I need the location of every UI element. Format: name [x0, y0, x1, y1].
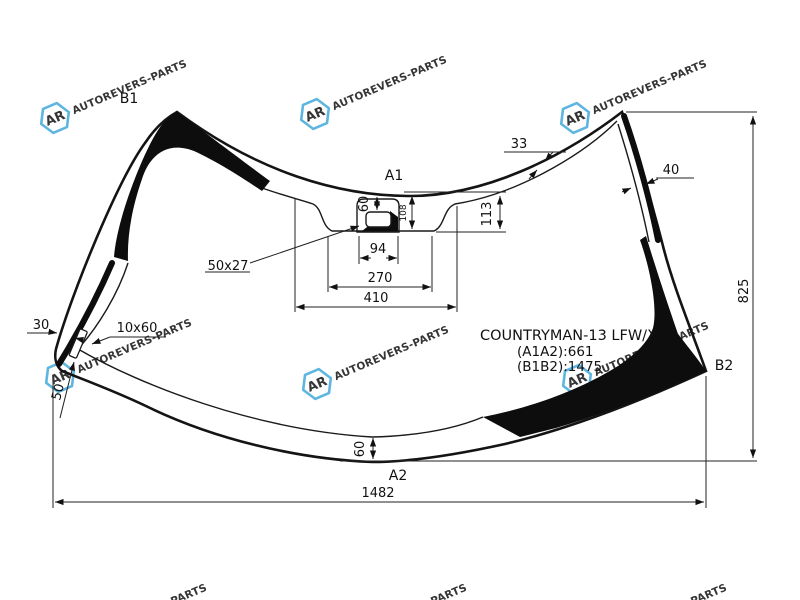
inner-trim-top — [262, 121, 617, 231]
drawing-canvas: AR AUTOREVERS-PARTS AR AUTOREVERS-PARTS … — [0, 0, 800, 600]
watermark: AR AUTOREVERS-PARTS — [296, 46, 451, 131]
frit-band-top-left — [114, 112, 270, 261]
dim-pocket-depth: 113 — [480, 202, 495, 227]
dim-side-band: 40 — [663, 163, 680, 178]
windshield-technical-drawing: AR AUTOREVERS-PARTS AR AUTOREVERS-PARTS … — [0, 0, 800, 600]
watermark: AR AUTOREVERS-PARTS — [298, 316, 453, 401]
dim-sensor-size: 50x27 — [208, 259, 249, 274]
watermark: AR AUTOREVERS-PARTS — [556, 50, 711, 135]
corner-label-a2: A2 — [389, 468, 407, 484]
dim-top-band: 33 — [511, 137, 528, 152]
watermark-logo: AR — [563, 108, 587, 130]
dim-glass-height: 825 — [737, 279, 752, 304]
inner-trim-bottom — [78, 349, 483, 437]
frit-band-right-stripe — [624, 116, 658, 240]
watermark-logo: AR — [43, 108, 67, 130]
sensor-opening-50x27 — [366, 212, 391, 227]
watermark: AR AUTOREVERS-PARTS — [576, 574, 731, 600]
dim-sticker-size: 10x60 — [117, 321, 158, 336]
spec-b1b2: (B1B2):1475 — [517, 359, 602, 375]
watermark: AR AUTOREVERS-PARTS — [56, 574, 211, 600]
watermark: AR AUTOREVERS-PARTS — [316, 574, 471, 600]
dim-bottom-band: 60 — [353, 441, 368, 458]
watermark-text: AUTOREVERS-PARTS — [91, 582, 209, 600]
part-title: COUNTRYMAN-13 LFW/X — [480, 328, 657, 344]
dim-sensor-depth: 108 — [399, 204, 409, 221]
labels: B1 A1 B2 A2 33 40 825 1482 60 108 113 94… — [33, 91, 752, 501]
dim-sensor-offset-top: 60 — [357, 196, 372, 213]
watermark-text: AUTOREVERS-PARTS — [591, 58, 709, 117]
watermark-text: AUTOREVERS-PARTS — [331, 54, 449, 113]
dim-left-band: 30 — [33, 318, 50, 333]
corner-label-b1: B1 — [120, 91, 139, 107]
watermark-text: AUTOREVERS-PARTS — [71, 58, 189, 117]
corner-label-a1: A1 — [385, 168, 403, 184]
corner-label-b2: B2 — [715, 358, 734, 374]
watermark-text: AUTOREVERS-PARTS — [351, 582, 469, 600]
watermark-text: AUTOREVERS-PARTS — [333, 324, 451, 383]
dim-pocket-width: 270 — [368, 271, 393, 286]
watermark-text: AUTOREVERS-PARTS — [611, 582, 729, 600]
watermark-logo: AR — [305, 374, 329, 396]
spec-a1a2: (A1A2):661 — [517, 344, 594, 360]
watermark-logo: AR — [303, 104, 327, 126]
dim-sensor-window-width: 94 — [370, 242, 387, 257]
dim-glass-width: 1482 — [361, 486, 394, 501]
dim-pocket-outer-width: 410 — [364, 291, 389, 306]
